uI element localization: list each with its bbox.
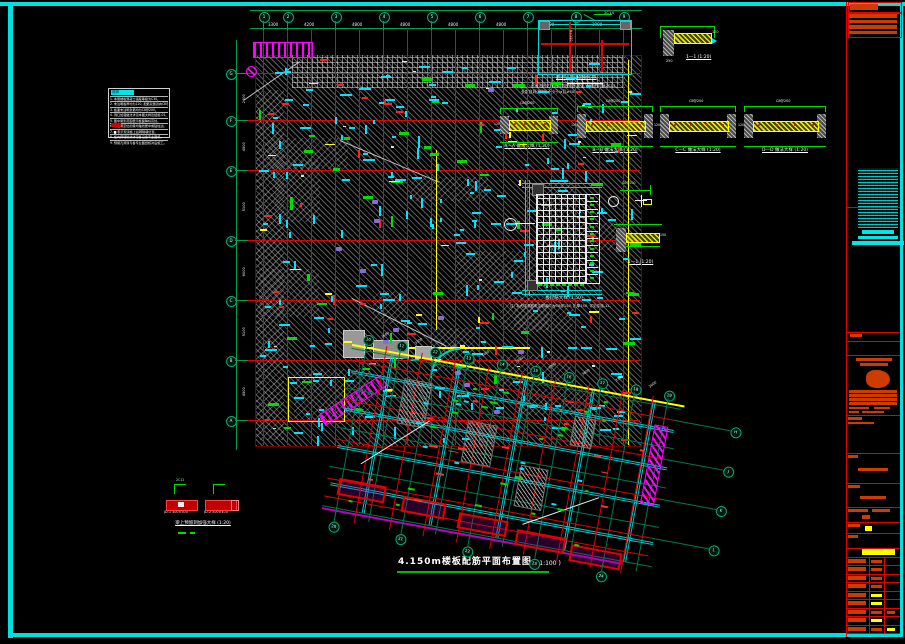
rebar-annotation (381, 264, 383, 276)
green-tick (544, 284, 548, 286)
red-mark (279, 306, 285, 308)
rebar-annotation (606, 160, 614, 162)
line (586, 245, 598, 246)
tiny-text-blob (578, 141, 581, 143)
rebar-annotation (538, 91, 549, 93)
tb-divider (846, 355, 900, 356)
tiny-text-blob (517, 366, 520, 368)
line (641, 195, 642, 207)
rebar-annotation (300, 127, 311, 129)
rebar-dot (706, 124, 708, 126)
yellow-mark (325, 144, 335, 146)
rebar-annotation (512, 292, 521, 294)
rebar-mark (304, 150, 314, 153)
drawing-frame-bottom (8, 633, 903, 637)
rebar-annotation (287, 71, 291, 73)
rebar-annotation (497, 195, 505, 197)
line (250, 10, 642, 11)
wing-ext-line (652, 538, 709, 550)
tb-table-line (846, 599, 900, 600)
wing-green-mark (604, 400, 609, 403)
line (383, 21, 384, 30)
leader-circle (504, 218, 517, 231)
dimension-label: 4800 (400, 23, 410, 27)
rebar-annotation (569, 314, 579, 316)
rebar-annotation (507, 67, 516, 69)
rebar-mark (626, 292, 634, 295)
section-slab (586, 121, 646, 132)
tb-cell-bar (887, 611, 895, 614)
rebar-annotation (525, 164, 529, 166)
note-row: 9. 预留孔洞须与各专业图纸核对后施工。 (110, 140, 168, 146)
rebar-annotation (586, 85, 592, 87)
wing-ext-line (674, 420, 731, 432)
rebar-annotation (470, 192, 474, 194)
line (335, 21, 336, 30)
dimension-label: 5100 (243, 327, 247, 336)
rebar-annotation (380, 304, 382, 310)
rebar-annotation (260, 355, 266, 357)
text-label: 250 (666, 60, 672, 63)
green-tick (590, 262, 594, 264)
general-notes-box: 说明 1. 本层楼板混凝土强度等级为C30。2. 未注明板厚均为120, 配筋双… (108, 88, 170, 138)
rebar-annotation (551, 168, 559, 170)
tiny-text-blob (583, 157, 586, 159)
red-mark (590, 316, 592, 323)
rebar-dot (674, 124, 676, 126)
rebar-annotation (581, 326, 586, 328)
yellow-mark (627, 135, 637, 137)
rebar-dot (524, 123, 526, 125)
yellow-mark (309, 83, 318, 85)
rebar-mark (287, 337, 297, 340)
line (586, 260, 598, 261)
line (614, 224, 662, 225)
tb-label (848, 417, 862, 420)
note-row: 4. 洞口加强做法详见本图大样及结施-01。 (110, 112, 168, 118)
tb-table-line (846, 633, 900, 634)
tb-cell-bar (871, 611, 882, 614)
line (577, 106, 578, 112)
wing-green-mark (452, 411, 459, 414)
rebar-annotation (341, 230, 343, 238)
line (735, 106, 736, 112)
title-underline (397, 571, 549, 573)
rebar-annotation (454, 234, 460, 236)
tb-divider (846, 533, 900, 534)
stem (467, 536, 470, 546)
text-label: h=150 (569, 30, 572, 41)
red-mark (320, 59, 329, 61)
green-tick (590, 240, 594, 242)
grid-line (248, 170, 640, 171)
rebar-annotation (585, 171, 587, 182)
wing-green-mark (395, 503, 400, 506)
rebar-annotation (621, 101, 628, 103)
rebar-dot (758, 124, 760, 126)
text-label: C8@200 (520, 102, 534, 105)
wing-green-mark (502, 391, 508, 394)
hole-notch (178, 502, 184, 507)
green-tick (562, 284, 566, 286)
rebar-annotation (294, 432, 303, 434)
tiny-text-blob (629, 91, 632, 93)
purple-tag (383, 340, 389, 344)
red-mark (282, 103, 289, 105)
yellow-mark (589, 311, 599, 313)
text-label: C8@200 (776, 100, 790, 103)
tb-bar (849, 31, 897, 35)
grid-bubble: B (226, 356, 237, 367)
rebar-annotation (356, 285, 367, 287)
wing-green-mark (472, 388, 477, 391)
tb-pedestal (862, 230, 894, 234)
tb-pedestal (852, 241, 904, 245)
rebar-mark (551, 82, 561, 85)
red-mark (360, 303, 366, 305)
rebar-annotation (597, 297, 603, 299)
dimension-label: 4500 (243, 387, 247, 396)
wing-green-mark (602, 420, 605, 422)
rebar-mark (623, 342, 635, 345)
line (263, 21, 264, 30)
grid-bubble: 20 (327, 520, 340, 533)
section-column (616, 228, 626, 252)
tb-table-line (846, 557, 900, 558)
rebar-annotation (293, 164, 303, 166)
rebar-annotation (443, 71, 453, 73)
tb-cell-bar (887, 628, 895, 631)
rebar-annotation (385, 99, 395, 101)
red-mark (505, 134, 507, 139)
rebar-mark (307, 274, 310, 280)
tb-table-line (846, 608, 900, 609)
rebar-annotation (472, 220, 477, 222)
section-column (744, 114, 753, 138)
rebar-annotation (310, 345, 315, 347)
tb-cell-text (848, 584, 866, 588)
grid-bubble: H (729, 426, 742, 439)
note-row: 1. 本层楼板混凝土强度等级为C30。 (110, 96, 168, 102)
tb-cell-bar (871, 619, 882, 622)
note-row: 8. 板内预埋管线详见各设备专业图纸。 (110, 134, 168, 140)
text-label: 120 (494, 123, 500, 126)
rebar-annotation (268, 341, 270, 348)
rebar-annotation (462, 67, 468, 69)
wing-green-mark (539, 438, 543, 441)
line (235, 360, 248, 361)
tb-table-line (846, 574, 900, 575)
grid-bubble: 3 (331, 12, 342, 23)
rebar-annotation (631, 209, 633, 220)
rebar-annotation (541, 347, 543, 358)
wing-red-mark (501, 446, 509, 449)
grid-bubble: 24 (595, 570, 608, 583)
rebar-annotation (511, 272, 513, 278)
line (652, 106, 653, 112)
tb-cell-text (848, 567, 866, 571)
dimension-label: 4800 (352, 23, 362, 27)
purple-tag (374, 219, 380, 223)
slab-edge-yellow (436, 150, 437, 330)
text-label: 120 (654, 124, 660, 127)
opening-detail-frame (538, 20, 632, 75)
tb-divider (846, 522, 900, 523)
tb-cell-bar (871, 560, 882, 563)
line (586, 238, 598, 239)
rebar-annotation (421, 198, 423, 208)
tb-spec-text (858, 168, 898, 228)
line (586, 223, 598, 224)
line (500, 108, 501, 114)
line (431, 21, 432, 30)
line (586, 194, 598, 195)
yellow-mark (520, 144, 527, 146)
red-mark (274, 291, 279, 293)
rebar-annotation (319, 409, 324, 411)
line (500, 142, 558, 143)
rebar-annotation (303, 104, 309, 106)
line (650, 185, 651, 195)
tb-bar (849, 398, 897, 401)
beam-box (514, 529, 566, 554)
line (660, 106, 661, 112)
wing-red-mark (601, 505, 608, 508)
notes-title: 说明 (111, 90, 134, 95)
tb-table-line (846, 591, 900, 592)
wing-ext-line (659, 498, 716, 510)
red-mark (265, 419, 270, 421)
line (660, 26, 661, 38)
yellow-mark (509, 132, 511, 138)
rebar-mark (391, 216, 394, 227)
rebar-annotation (279, 324, 290, 326)
yellow-mark (478, 317, 480, 322)
wing-red-mark (566, 400, 575, 403)
wing-red-mark (473, 400, 478, 403)
rebar-annotation (432, 224, 434, 229)
tb-bar (849, 390, 897, 393)
rebar-annotation (273, 117, 278, 119)
rebar-annotation (418, 323, 427, 325)
red-mark (535, 75, 537, 84)
rebar-dot (623, 124, 625, 126)
tiny-text-blob (413, 71, 416, 73)
line (540, 24, 628, 25)
grid-line (248, 300, 640, 301)
titleblock-border (846, 2, 847, 637)
rebar-annotation (467, 179, 469, 187)
grid-bubble: 5 (427, 12, 438, 23)
line (527, 21, 528, 30)
rebar-annotation (330, 380, 332, 386)
rebar-annotation (363, 159, 375, 161)
rebar-annotation (391, 172, 393, 177)
grid-bubble: 19 (663, 389, 676, 402)
tb-bar (850, 4, 878, 10)
grid-bubble: F (226, 116, 237, 127)
rebar-annotation (582, 299, 591, 301)
rebar-annotation (342, 179, 350, 181)
rebar-mark (309, 135, 315, 138)
tb-divider (846, 332, 900, 333)
rebar-annotation (396, 106, 404, 108)
red-mark (480, 322, 489, 324)
rebar-annotation (547, 158, 549, 164)
tb-cell-bar (871, 585, 882, 588)
text-label: 120 (571, 124, 577, 127)
rebar-annotation (349, 127, 355, 129)
wing-red-mark (427, 417, 434, 420)
purple-tag (438, 316, 444, 320)
rebar-annotation (566, 77, 577, 79)
rebar-annotation (318, 418, 320, 427)
rebar-mark (363, 196, 373, 199)
line (213, 484, 225, 485)
rebar-dot (591, 124, 593, 126)
line (567, 83, 603, 84)
rebar-mark (457, 160, 467, 163)
rebar-annotation (557, 180, 568, 182)
line (869, 557, 870, 633)
rebar-annotation (313, 380, 320, 382)
grid-line (263, 30, 264, 445)
dimension-label: 3300 (268, 23, 278, 27)
red-mark (265, 215, 272, 217)
line (525, 180, 526, 296)
rebar-annotation (341, 135, 343, 140)
section-slab (674, 33, 712, 44)
green-tick (590, 233, 594, 235)
rebar-mark (422, 78, 432, 81)
drawing-frame-left (8, 2, 13, 638)
rebar-mark (433, 292, 444, 295)
wing-ext-line (666, 459, 723, 471)
tb-bar (858, 468, 888, 471)
green-tick (590, 218, 594, 220)
yellow-mark (441, 245, 449, 247)
rebar-annotation (494, 281, 504, 283)
wing-stair (569, 416, 596, 450)
rebar-annotation (306, 413, 310, 415)
column-block (620, 21, 631, 30)
grid-bubble: 1 (259, 12, 270, 23)
hole-detail-caption: 梁上预留洞加强大样 (1:20) (158, 522, 248, 527)
rebar-annotation (363, 153, 368, 155)
red-mark (495, 346, 497, 356)
line (586, 267, 598, 268)
section-slab (509, 120, 551, 131)
rebar-annotation (558, 190, 568, 192)
stair-mark (246, 66, 257, 77)
leader-line (594, 14, 612, 15)
rebar-annotation (502, 346, 512, 348)
rebar-annotation (412, 177, 422, 179)
grid-bubble: 21 (394, 533, 407, 546)
cad-drawing-canvas: 4.150m楼板配筋平面布置图 ( 1:100 ) 34800 板洞口加强配筋示… (0, 0, 905, 644)
yellow-mark (344, 341, 353, 343)
tb-label (848, 485, 860, 488)
rebar-annotation (272, 123, 274, 134)
rebar-annotation (313, 373, 322, 375)
rebar-annotation (381, 76, 390, 78)
purple-tag (360, 269, 366, 273)
line (236, 40, 237, 450)
rebar-annotation (410, 195, 412, 200)
note-row: 2. 未注明板厚均为120, 配筋双层双向C8@200。 (110, 101, 168, 107)
yellow-mark (402, 61, 407, 63)
rebar-mark (465, 84, 476, 87)
yellow-mark (268, 155, 275, 157)
rebar-annotation (429, 84, 436, 86)
green-tick (538, 284, 542, 286)
tb-label (848, 455, 858, 458)
red-mark (396, 111, 403, 113)
rebar-annotation (407, 322, 412, 324)
tb-divider (846, 453, 900, 454)
tiny-text-blob (343, 126, 346, 128)
rebar-dot (812, 124, 814, 126)
tiny-text-blob (592, 365, 595, 367)
rebar-mark (517, 221, 520, 229)
rebar-mark (399, 132, 409, 135)
red-mark (542, 134, 544, 141)
rebar-dot (776, 124, 778, 126)
rebar-mark (259, 110, 262, 121)
tb-divider (846, 341, 900, 342)
rebar-annotation (314, 317, 324, 319)
tiny-text-blob (274, 346, 277, 348)
rebar-annotation (484, 189, 492, 191)
rebar-annotation (317, 436, 319, 446)
rebar-annotation (430, 218, 432, 227)
rebar-annotation (328, 328, 330, 333)
rebar-mark (513, 84, 525, 87)
wing-red-mark (601, 471, 608, 474)
section-column (577, 114, 586, 138)
rebar-annotation (373, 120, 375, 124)
tb-cell-bar (871, 594, 882, 597)
tb-cell-text (848, 576, 866, 580)
text-label: 120 (738, 124, 744, 127)
rebar-annotation (383, 299, 394, 301)
red-mark (578, 163, 584, 165)
tb-stamp-blob (866, 370, 890, 388)
rebar-annotation (380, 293, 389, 295)
rebar-annotation (481, 341, 486, 343)
stem (400, 524, 403, 534)
tb-bar (874, 407, 890, 409)
rebar-annotation (419, 66, 431, 68)
rebar-annotation (606, 348, 617, 350)
red-mark (618, 146, 620, 153)
section-column (663, 30, 674, 56)
line (213, 484, 214, 494)
tb-bar (860, 363, 888, 366)
tiny-text-blob (486, 88, 489, 90)
section-column (660, 114, 669, 138)
rebar-annotation (313, 215, 315, 224)
tb-bar (862, 515, 870, 519)
red-mark (337, 84, 343, 86)
line (586, 201, 598, 202)
tb-label (848, 524, 860, 527)
rebar-dot (607, 124, 609, 126)
rebar-annotation (440, 218, 442, 222)
rebar-annotation (514, 260, 523, 262)
dimension-label: 6000 (243, 267, 247, 276)
line (577, 106, 653, 107)
